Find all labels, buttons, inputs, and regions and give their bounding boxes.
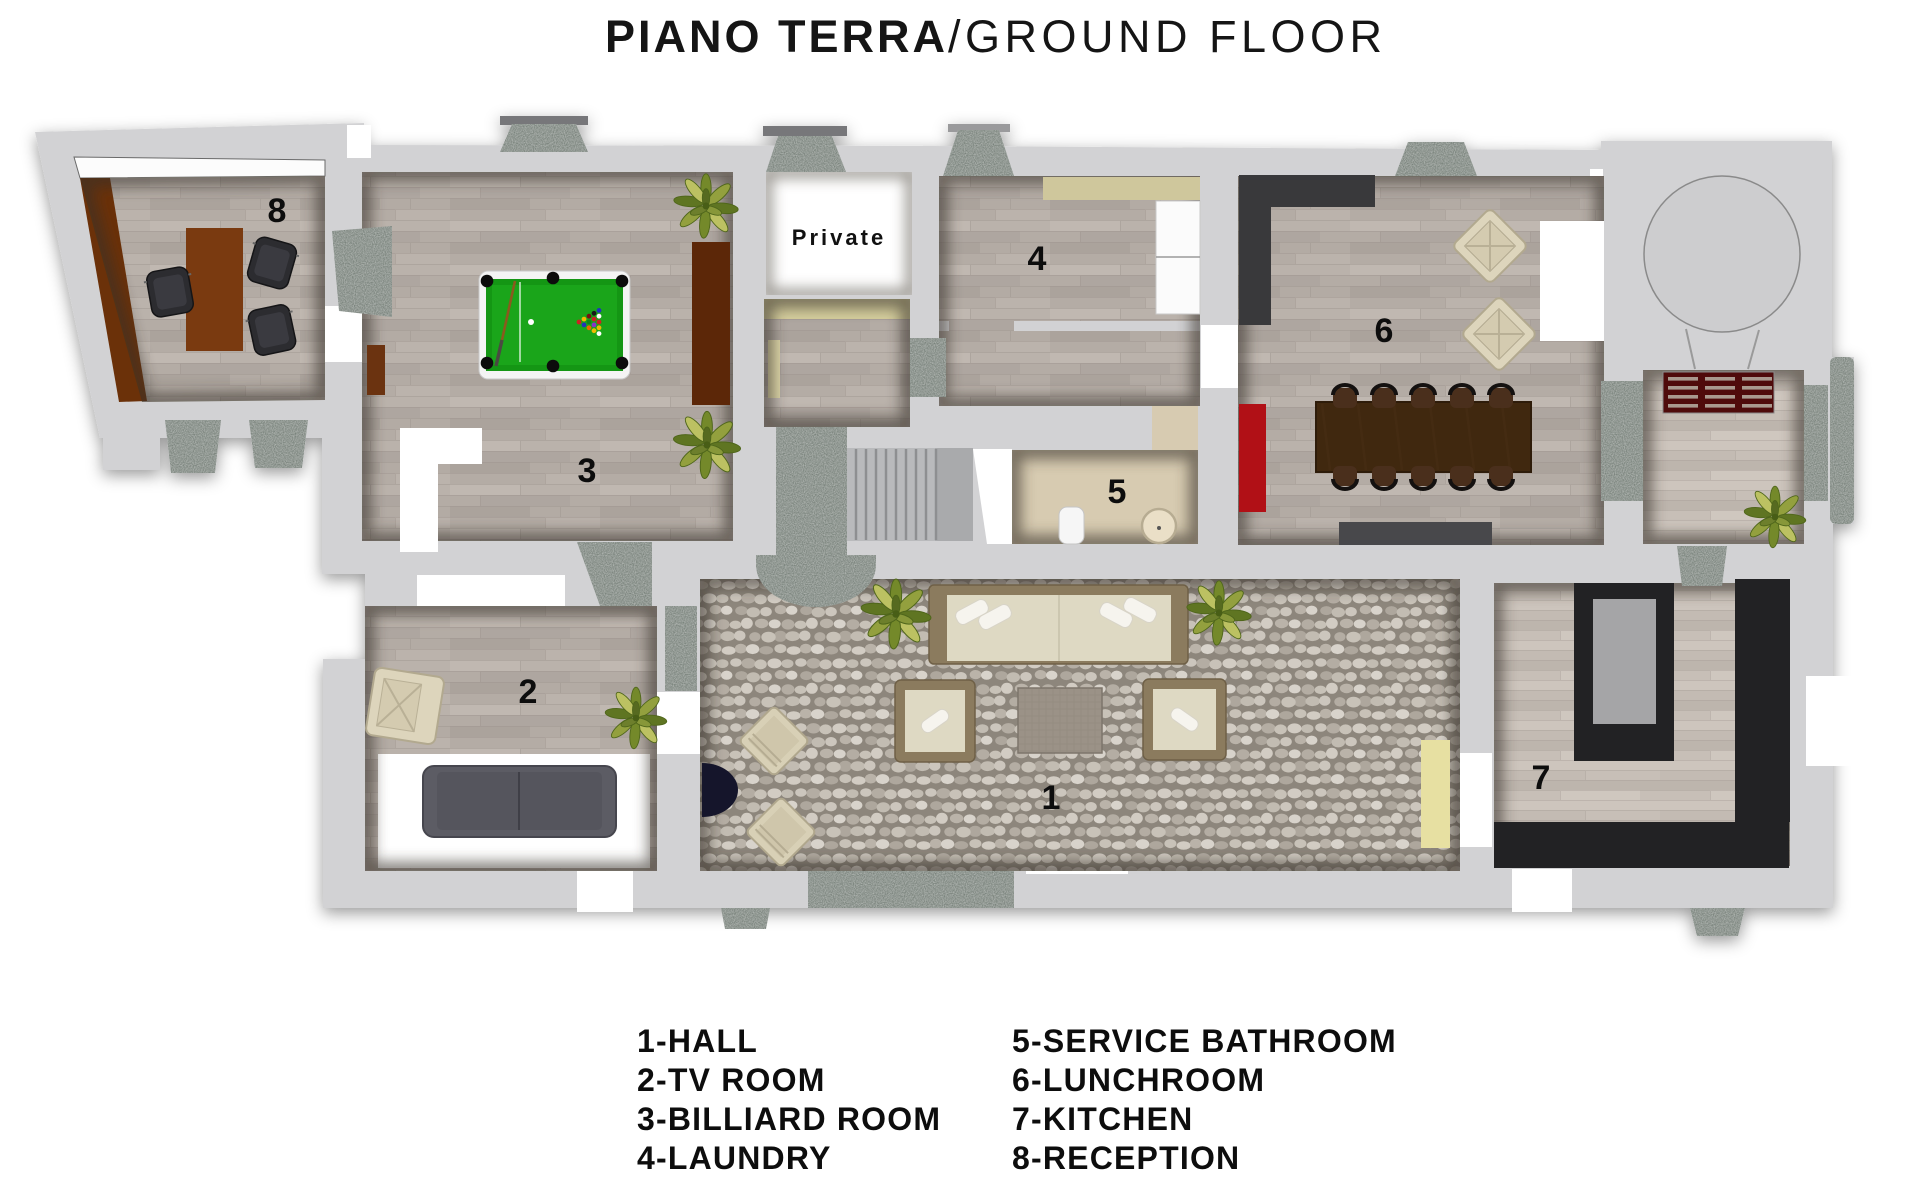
svg-text:5-SERVICE BATHROOM: 5-SERVICE BATHROOM bbox=[1012, 1023, 1397, 1059]
svg-text:7: 7 bbox=[1532, 759, 1551, 797]
svg-text:3: 3 bbox=[578, 452, 597, 490]
svg-text:1: 1 bbox=[1042, 779, 1061, 817]
svg-text:8-RECEPTION: 8-RECEPTION bbox=[1012, 1140, 1240, 1176]
svg-text:PIANO TERRA/GROUND FLOOR: PIANO TERRA/GROUND FLOOR bbox=[605, 11, 1387, 62]
svg-text:4: 4 bbox=[1028, 240, 1047, 278]
svg-text:8: 8 bbox=[268, 192, 287, 230]
svg-text:5: 5 bbox=[1108, 473, 1127, 511]
svg-text:7-KITCHEN: 7-KITCHEN bbox=[1012, 1101, 1193, 1137]
svg-text:6: 6 bbox=[1375, 312, 1394, 350]
svg-text:4-LAUNDRY: 4-LAUNDRY bbox=[637, 1140, 832, 1176]
svg-text:3-BILLIARD ROOM: 3-BILLIARD ROOM bbox=[637, 1101, 941, 1137]
svg-text:Private: Private bbox=[792, 225, 886, 250]
svg-text:2-TV ROOM: 2-TV ROOM bbox=[637, 1062, 826, 1098]
svg-text:6-LUNCHROOM: 6-LUNCHROOM bbox=[1012, 1062, 1265, 1098]
svg-text:2: 2 bbox=[519, 673, 538, 711]
svg-text:1-HALL: 1-HALL bbox=[637, 1023, 758, 1059]
